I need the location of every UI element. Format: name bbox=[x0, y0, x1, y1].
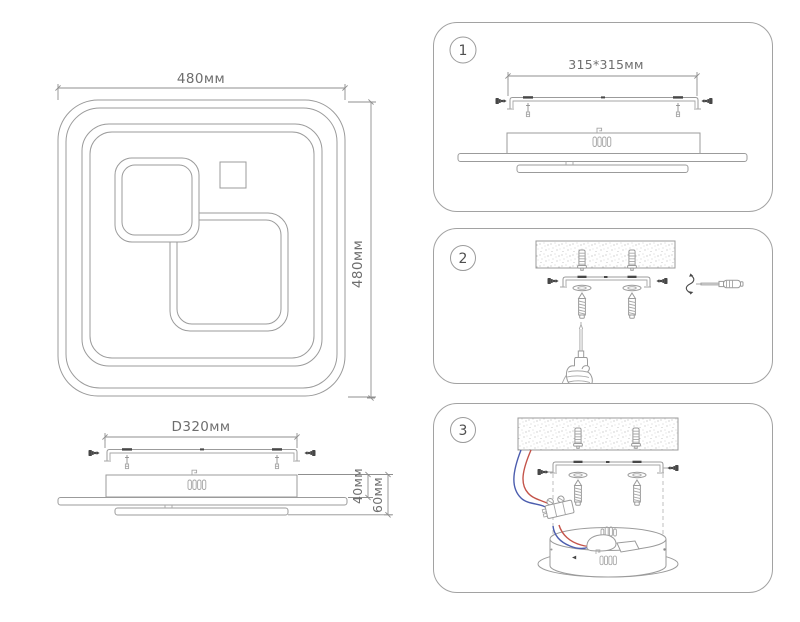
step-panel-1: 1 315*315мм bbox=[433, 22, 773, 212]
hand-screwdriver-icon bbox=[560, 322, 592, 383]
ceiling-panel bbox=[58, 498, 347, 506]
screw-icon bbox=[656, 278, 667, 284]
plate-size-label: 315*315мм bbox=[568, 57, 644, 72]
mounting-bracket bbox=[550, 461, 664, 473]
fixture-drum bbox=[538, 527, 678, 577]
body-height-label: 40мм bbox=[350, 468, 365, 504]
rotation-arrow-icon bbox=[686, 273, 694, 294]
wall-anchor-icon bbox=[574, 428, 583, 448]
washer-icon bbox=[569, 472, 587, 477]
diffuser-plate bbox=[115, 505, 288, 515]
screw-icon bbox=[496, 98, 507, 104]
ceiling-panel bbox=[458, 154, 747, 162]
step-number: 1 bbox=[459, 43, 468, 59]
step-3-illustration: 3 bbox=[434, 404, 772, 592]
washer-icon bbox=[573, 285, 591, 290]
side-view-diagram: D320мм 40мм bbox=[40, 405, 410, 530]
mount-spacing-dimension: D320мм bbox=[102, 419, 299, 448]
wall-anchor-icon bbox=[578, 250, 587, 270]
screw-icon bbox=[538, 469, 549, 475]
mounting-screw-icon bbox=[629, 293, 636, 318]
total-height-dimension: 60мм bbox=[370, 472, 392, 517]
screw-icon bbox=[304, 450, 315, 456]
mounting-screw-icon bbox=[579, 293, 586, 318]
washer-icon bbox=[623, 285, 641, 290]
terminal-block bbox=[540, 494, 574, 520]
step-number-badge: 3 bbox=[451, 418, 476, 443]
ceiling-block bbox=[518, 418, 678, 450]
screw-icon bbox=[125, 455, 129, 469]
step-number-badge: 1 bbox=[450, 37, 476, 63]
ceiling-block bbox=[536, 241, 675, 268]
step-panel-3: 3 bbox=[433, 403, 773, 593]
screw-icon bbox=[667, 465, 678, 471]
control-box bbox=[220, 162, 246, 188]
driver-box bbox=[106, 470, 297, 497]
plate-size-dimension: 315*315мм bbox=[505, 57, 699, 96]
screw-icon bbox=[526, 103, 530, 117]
total-height-label: 60мм bbox=[370, 477, 385, 513]
screw-icon bbox=[701, 98, 712, 104]
washer-icon bbox=[628, 472, 646, 477]
screw-icon bbox=[548, 278, 559, 284]
step-1-illustration: 1 315*315мм bbox=[434, 23, 772, 211]
step-2-illustration: 2 bbox=[434, 229, 772, 383]
width-dimension: 480мм bbox=[55, 71, 347, 100]
wall-anchor-icon bbox=[628, 250, 637, 270]
screwdriver-icon bbox=[696, 280, 743, 288]
width-dimension-label: 480мм bbox=[177, 71, 225, 87]
mounting-bracket bbox=[104, 448, 300, 461]
screw-icon bbox=[275, 455, 279, 469]
screw-icon bbox=[676, 103, 680, 117]
height-dimension-label: 480мм bbox=[350, 240, 366, 288]
height-dimension: 480мм bbox=[348, 99, 376, 400]
installation-sheet: 480мм 480мм D320мм bbox=[0, 0, 800, 622]
top-view-diagram: 480мм 480мм bbox=[40, 60, 400, 410]
mounting-bracket bbox=[507, 96, 701, 109]
screw-icon bbox=[89, 450, 100, 456]
diffuser-plate bbox=[517, 162, 688, 173]
wall-anchor-icon bbox=[632, 428, 641, 448]
mount-spacing-label: D320мм bbox=[172, 419, 231, 435]
led-square-small bbox=[115, 158, 199, 242]
mounting-screw-icon bbox=[575, 480, 582, 505]
driver-box bbox=[507, 128, 700, 157]
step-number: 3 bbox=[459, 423, 468, 439]
step-number: 2 bbox=[459, 251, 468, 267]
step-panel-2: 2 bbox=[433, 228, 773, 384]
step-number-badge: 2 bbox=[451, 246, 476, 271]
mounting-screw-icon bbox=[634, 480, 641, 505]
